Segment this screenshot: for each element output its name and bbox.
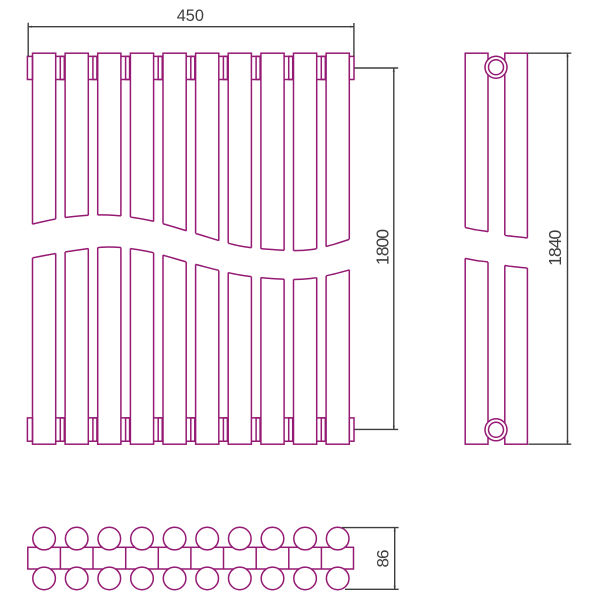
svg-text:1840: 1840: [545, 230, 565, 266]
svg-text:1800: 1800: [373, 229, 393, 265]
svg-text:86: 86: [374, 550, 393, 567]
svg-text:450: 450: [177, 7, 204, 25]
